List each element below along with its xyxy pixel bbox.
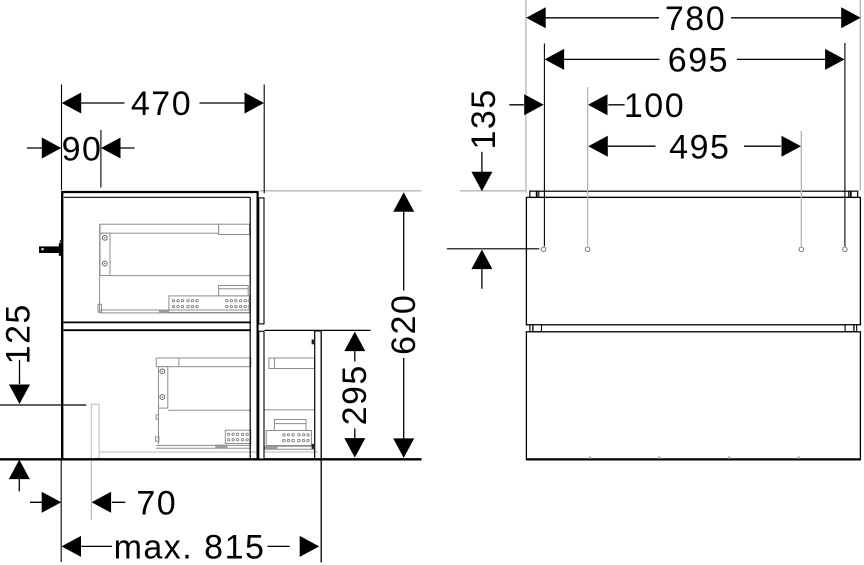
svg-text:90: 90 xyxy=(62,130,103,168)
svg-text:470: 470 xyxy=(131,85,192,123)
svg-text:295: 295 xyxy=(336,364,374,425)
svg-text:620: 620 xyxy=(385,294,423,355)
svg-text:695: 695 xyxy=(668,42,729,80)
svg-text:780: 780 xyxy=(665,0,726,38)
svg-text:125: 125 xyxy=(0,303,38,364)
svg-text:495: 495 xyxy=(669,128,730,166)
svg-text:70: 70 xyxy=(136,485,177,523)
svg-text:100: 100 xyxy=(624,87,685,125)
svg-text:max. 815: max. 815 xyxy=(114,529,266,565)
svg-text:135: 135 xyxy=(465,88,503,149)
